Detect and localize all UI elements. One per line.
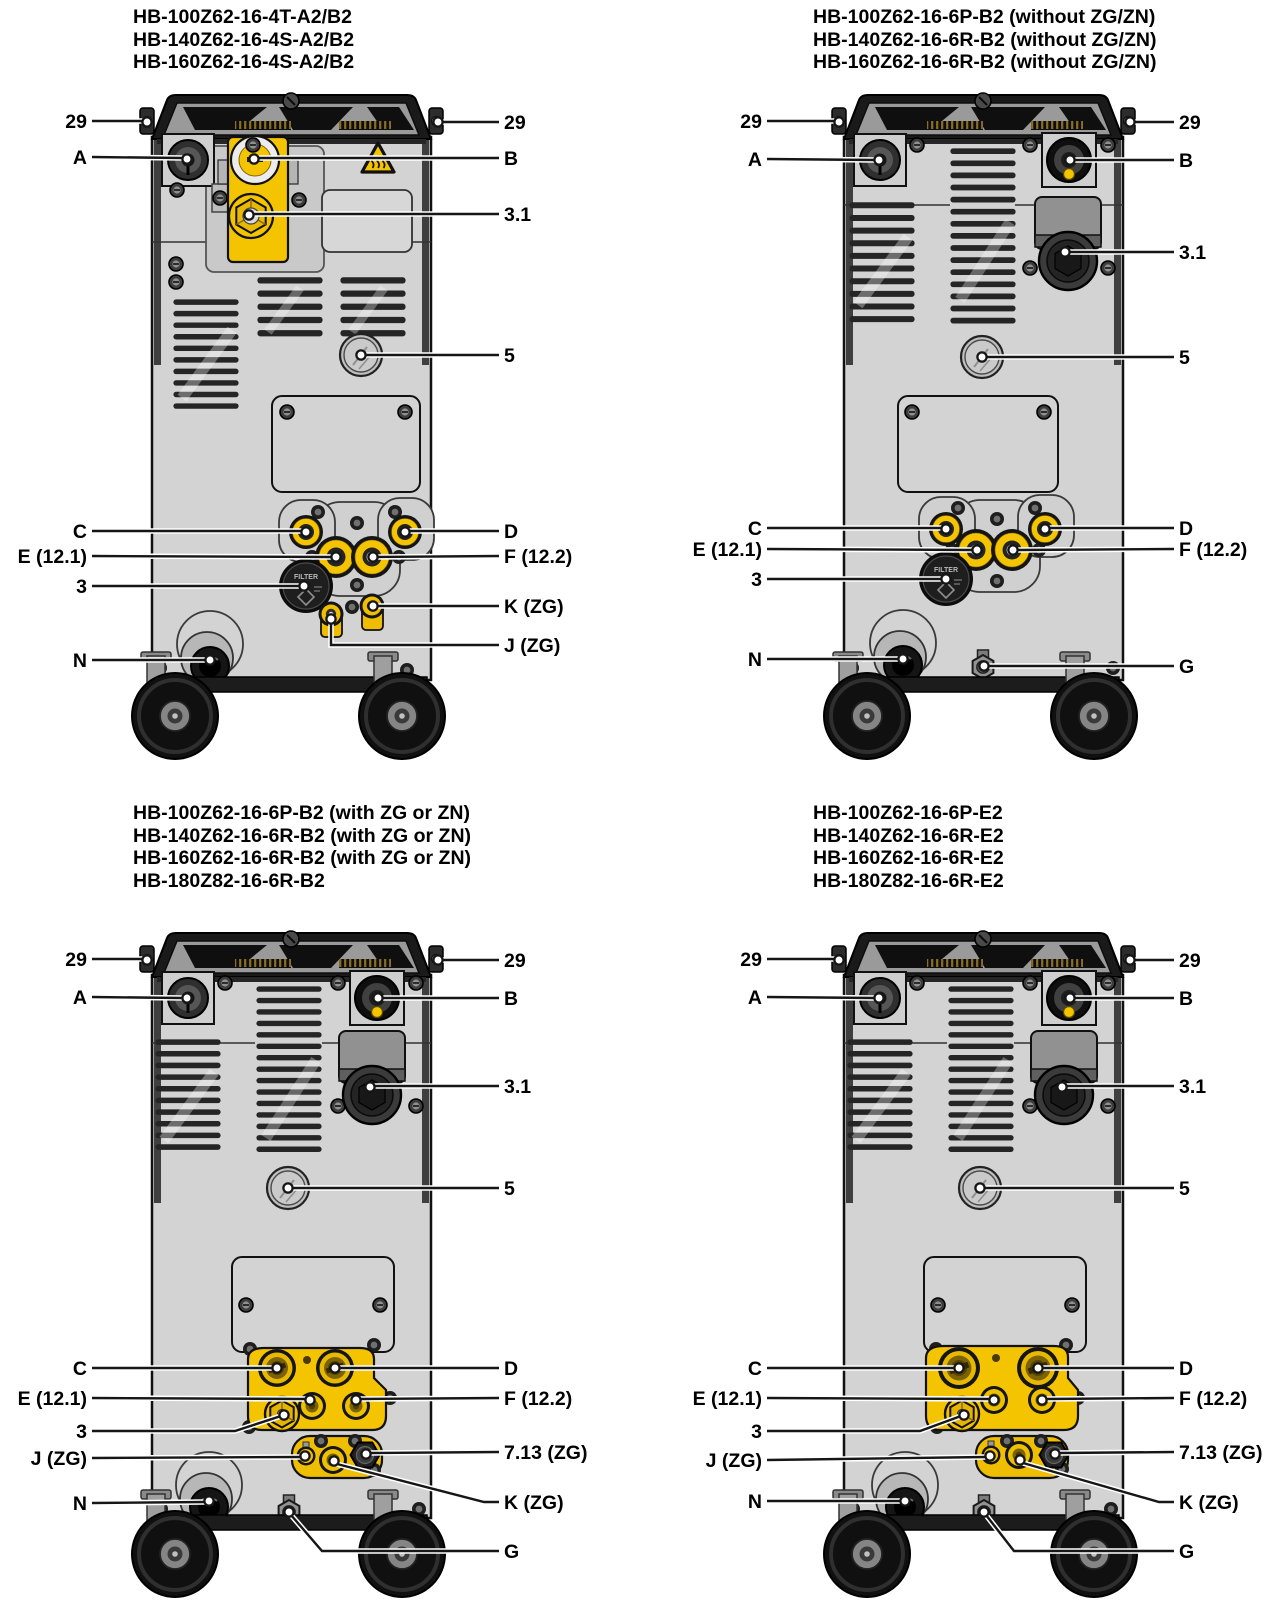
callout-b: B [504,988,518,1010]
callout-e: E (12.1) [693,539,762,561]
machine-diagram: 29 29 A B 3.1 5 C D E (12.1) F (12.2) 3 … [0,0,640,800]
title-line: HB-160Z62-16-6R-B2 (without ZG/ZN) [813,51,1156,74]
callout-29-left: 29 [65,949,87,971]
callout-b: B [1179,150,1193,172]
leader-29-right [1125,955,1174,964]
callout-3: 3 [751,569,762,591]
callout-g: G [504,1541,519,1563]
callout-e: E (12.1) [18,546,87,568]
callout-b: B [1179,988,1193,1010]
filler-cap-3-1 [1031,1031,1097,1124]
callout-a: A [73,147,87,169]
callout-n: N [748,1491,762,1513]
callout-n: N [748,649,762,671]
callout-f: F (12.2) [504,1388,572,1410]
title-line: HB-160Z62-16-4S-A2/B2 [133,51,354,74]
callout-5: 5 [1179,1178,1190,1200]
title-line: HB-100Z62-16-6P-B2 (with ZG or ZN) [133,802,471,825]
leader-29-left [92,955,152,964]
panel-title: HB-100Z62-16-6P-E2 HB-140Z62-16-6R-E2 HB… [813,802,1004,892]
access-panel [898,396,1058,492]
panel-title: HB-100Z62-16-4T-A2/B2 HB-140Z62-16-4S-A2… [133,6,354,74]
callout-g: G [1179,1541,1194,1563]
callout-c: C [73,1358,87,1380]
side-panel [322,190,412,252]
machine-diagram: 29 29 A B 3.1 5 C D E (12.1) F (12.2) 3 … [0,800,640,1600]
filler-cap-3-1 [1035,197,1101,290]
machine-rear-view [824,931,1137,1597]
callout-d: D [1179,1358,1193,1380]
callout-29-right: 29 [1179,950,1201,972]
callout-j: J (ZG) [31,1448,87,1470]
callout-29-right: 29 [504,112,526,134]
callout-e: E (12.1) [693,1388,762,1410]
callout-j: J (ZG) [504,635,560,657]
callout-3-1: 3.1 [1179,242,1206,264]
title-line: HB-140Z62-16-4S-A2/B2 [133,29,354,52]
machine-rear-view [132,931,445,1597]
title-line: HB-160Z62-16-6R-B2 (with ZG or ZN) [133,847,471,870]
panel-variant-6p-6r-without-zg: HB-100Z62-16-6P-B2 (without ZG/ZN) HB-14… [640,0,1280,800]
title-line: HB-100Z62-16-6P-E2 [813,802,1004,825]
machine-diagram: 29 29 A B 3.1 5 C D E (12.1) F (12.2) 3 … [640,800,1280,1600]
callout-3: 3 [76,576,87,598]
panel-title: HB-100Z62-16-6P-B2 (without ZG/ZN) HB-14… [813,6,1156,74]
callout-d: D [504,521,518,543]
callout-f: F (12.2) [1179,1388,1247,1410]
callout-f: F (12.2) [1179,539,1247,561]
callout-c: C [73,521,87,543]
callout-g: G [1179,656,1194,678]
callout-n: N [73,650,87,672]
callout-k: K (ZG) [504,596,564,618]
callout-7-13: 7.13 (ZG) [1179,1442,1262,1464]
callout-3-1: 3.1 [1179,1076,1206,1098]
title-line: HB-100Z62-16-4T-A2/B2 [133,6,354,29]
callout-k: K (ZG) [504,1492,564,1514]
callout-5: 5 [504,345,515,367]
callout-3: 3 [751,1421,762,1443]
title-line: HB-140Z62-16-6R-E2 [813,825,1004,848]
callout-29-left: 29 [740,111,762,133]
callout-a: A [748,149,762,171]
callout-5: 5 [504,1178,515,1200]
callout-a: A [73,987,87,1009]
access-panel [232,1257,394,1352]
callout-d: D [504,1358,518,1380]
callout-d: D [1179,518,1193,540]
callout-b: B [504,148,518,170]
title-line: HB-160Z62-16-6R-E2 [813,847,1004,870]
figure-canvas: FILTER [0,0,1280,1600]
callout-3-1: 3.1 [504,204,531,226]
callout-29-right: 29 [1179,112,1201,134]
panel-variant-4t-4s: HB-100Z62-16-4T-A2/B2 HB-140Z62-16-4S-A2… [0,0,640,800]
leader-29-right [1125,117,1174,126]
access-panel [924,1257,1086,1352]
callout-e: E (12.1) [18,1388,87,1410]
title-line: HB-180Z82-16-6R-E2 [813,870,1004,893]
callout-3-1: 3.1 [504,1076,531,1098]
callout-n: N [73,1493,87,1515]
panel-variant-6p-6r-e2: HB-100Z62-16-6P-E2 HB-140Z62-16-6R-E2 HB… [640,800,1280,1600]
callout-j: J (ZG) [706,1450,762,1472]
leader-29-left [92,117,152,126]
callout-5: 5 [1179,347,1190,369]
callout-3: 3 [76,1421,87,1443]
callout-c: C [748,1358,762,1380]
title-line: HB-140Z62-16-6R-B2 (with ZG or ZN) [133,825,471,848]
panel-title: HB-100Z62-16-6P-B2 (with ZG or ZN) HB-14… [133,802,471,892]
callout-c: C [748,518,762,540]
title-line: HB-140Z62-16-6R-B2 (without ZG/ZN) [813,29,1156,52]
title-line: HB-180Z82-16-6R-B2 [133,870,471,893]
machine-diagram: 29 29 A B 3.1 5 C D E (12.1) F (12.2) 3 … [640,0,1280,800]
panel-variant-6p-6r-with-zg: HB-100Z62-16-6P-B2 (with ZG or ZN) HB-14… [0,800,640,1600]
callout-29-left: 29 [65,111,87,133]
callout-k: K (ZG) [1179,1492,1239,1514]
callout-7-13: 7.13 (ZG) [504,1442,587,1464]
title-line: HB-100Z62-16-6P-B2 (without ZG/ZN) [813,6,1156,29]
callout-29-left: 29 [740,949,762,971]
callout-f: F (12.2) [504,546,572,568]
filler-cap-3-1 [339,1031,405,1124]
callout-a: A [748,987,762,1009]
callout-29-right: 29 [504,950,526,972]
